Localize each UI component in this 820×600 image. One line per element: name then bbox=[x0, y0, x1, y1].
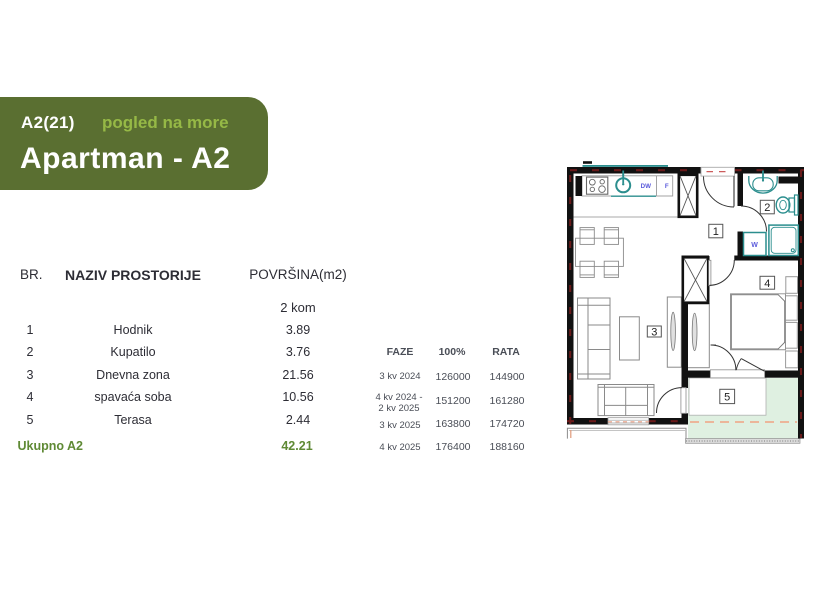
svg-text:2: 2 bbox=[764, 202, 770, 214]
svg-text:5: 5 bbox=[724, 392, 730, 404]
svg-text:3: 3 bbox=[651, 327, 657, 339]
svg-text:W: W bbox=[751, 242, 758, 249]
svg-text:4: 4 bbox=[764, 278, 770, 290]
svg-text:F: F bbox=[665, 183, 669, 190]
svg-text:1: 1 bbox=[713, 226, 719, 238]
svg-text:DW: DW bbox=[641, 183, 651, 190]
